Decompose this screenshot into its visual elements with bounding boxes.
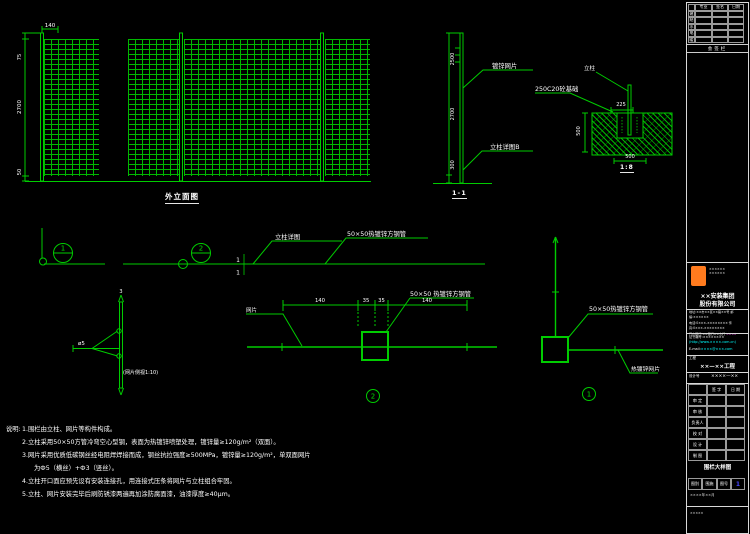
d2-leader-pipe: 50×50 热镀锌方钢管 — [410, 289, 471, 298]
info-cell-3: 图号 — [717, 478, 731, 490]
note-line-1: 1.围栏由立柱、网片等构件构成。 — [22, 424, 116, 433]
address-line1: 地址:××市××区××路××号 邮编:×××××× — [689, 310, 746, 321]
logo-side-line2: ×××××× — [709, 271, 745, 275]
elev-dim-50: 50 — [17, 169, 23, 175]
tb-divider — [687, 372, 748, 373]
sect-dim-2500: 2500 — [450, 53, 456, 66]
cert-number: 证书编号:×××××××× — [689, 334, 724, 339]
d2-dim-140a: 140 — [315, 298, 326, 304]
info-cell-2: 围施 — [702, 478, 717, 490]
detail2-lines — [246, 298, 497, 403]
drawing-info-row: 图别 围施 图号 1 — [688, 478, 745, 490]
plan-cut-top: 1 — [236, 257, 240, 264]
d1-leader-pipe: 50×50热镀锌方钢管 — [589, 304, 648, 313]
detail1-lines — [542, 237, 663, 401]
sect-dim-2700: 2700 — [450, 108, 456, 121]
info-cell-4: 1 — [731, 478, 745, 490]
tb-divider — [687, 262, 748, 263]
staff-row-label: 审 核 — [688, 406, 707, 417]
company-logo-side: ×××××× ×××××× — [709, 267, 745, 276]
elev-dim-75: 75 — [17, 54, 23, 60]
staff-table: 签 字 日 期 审 定 审 核 负责人 校 对 设 计 制 图 — [688, 384, 745, 461]
staff-row-label: 制 图 — [688, 450, 707, 461]
elevation-lines — [22, 26, 371, 182]
fnd-label-post: 立柱 — [584, 64, 596, 72]
plan-bubble-1: 1 — [61, 245, 65, 253]
project-value: ××—××工程 — [687, 362, 748, 370]
note-line-5: 4.立柱开口面应预先设有安装连接孔，用连接式压条将网片与立柱组合牢固。 — [22, 476, 236, 485]
d2-dim-140b: 140 — [422, 298, 433, 304]
tb-divider — [687, 506, 748, 507]
project-label: 工程 — [689, 356, 696, 361]
elev-dim-140: 140 — [45, 23, 56, 29]
d1-bubble: 1 — [587, 391, 591, 399]
info-cell-1: 图别 — [688, 478, 702, 490]
foundation-caption: 1:8 — [620, 164, 634, 173]
note-line-6: 5.立柱、网片安装完毕后刷防锈漆两遍再加涂防腐面漆，油漆厚度≥40μm。 — [22, 489, 234, 498]
plan-leader-detail: 立柱详图 — [275, 232, 300, 241]
drawing-title: 围栏大样图 — [687, 463, 748, 471]
elevation-caption: 外立面图 — [165, 191, 199, 204]
sign-row-label: 暖 — [688, 37, 695, 44]
footer-line2: ××××× — [690, 511, 703, 515]
email-label: E-mail: — [689, 347, 701, 351]
fnd-dim-depth: 500 — [576, 126, 582, 136]
d1-leader-mesh: 热镀锌网片 — [631, 365, 660, 373]
staff-row-label: 负责人 — [688, 417, 707, 428]
d2-label-mesh: 网片 — [246, 306, 257, 314]
sect-dim-300: 300 — [450, 160, 456, 170]
note-line-4: 为Ф5（横丝）+Ф3（竖丝）。 — [34, 463, 118, 472]
staff-header-date: 日 期 — [726, 384, 745, 395]
plan-strip-lines — [40, 228, 486, 275]
plan-cut-bottom: 1 — [236, 270, 240, 277]
sign-bar: 会签栏 — [687, 44, 748, 53]
design-no-value: ××××—×× — [711, 374, 738, 379]
cad-drawing-sheet: 140 75 2700 50 2500 2700 300 镀锌网片 立柱详图B … — [0, 0, 750, 534]
d2-bubble: 2 — [371, 393, 375, 401]
sect-leader-post: 立柱详图B — [490, 142, 520, 151]
fnd-dim-225: 225 — [616, 102, 626, 108]
company-logo — [691, 266, 706, 286]
footer-line1: ××××年××月 — [690, 493, 715, 498]
email-value: ××××@×××.com — [701, 347, 733, 351]
d2-dim-35b: 35 — [378, 298, 385, 304]
fnd-leader-concrete: 250C20砼基础 — [535, 84, 578, 93]
design-no-label: 设计号 — [689, 374, 700, 379]
staff-header-sign: 签 字 — [707, 384, 726, 395]
staff-row-label: 设 计 — [688, 439, 707, 450]
email-row: E-mail:××××@×××.com — [689, 347, 732, 351]
note-line-2: 2.立柱采用50×50方管冷弯空心型钢，表面为热镀锌喷塑处理，镀锌量≥120g/… — [22, 437, 280, 446]
note-line-3: 3.网片采用优质低碳钢丝经电阻焊焊接而成，钢丝抗拉强度≥500MPa，镀锌量≥1… — [22, 450, 311, 459]
fnd-dim-width: 500 — [625, 154, 635, 160]
side-top-label: 3 — [119, 289, 122, 295]
post-section-lines — [433, 33, 533, 184]
staff-row-label: 校 对 — [688, 428, 707, 439]
title-block: 专业 签名 日期 建 结 水 电 暖 会签栏 ×××××× ×××××× ××安… — [686, 2, 749, 534]
d2-dim-35a: 35 — [363, 298, 370, 304]
address-line2: 电话:0×××-×××××××× 传真:0×××-×××××××× — [689, 321, 746, 332]
website: (http://www.××××.com.cn) — [689, 340, 736, 344]
plan-bubble-2: 2 — [199, 245, 203, 253]
side-wire-label: ø5 — [78, 341, 85, 347]
plan-leader-pipe: 50×50热镀锌方钢管 — [347, 229, 406, 238]
tb-divider — [687, 355, 748, 356]
sect-leader-mesh: 镀锌网片 — [492, 61, 517, 70]
sign-table: 专业 签名 日期 建 结 水 电 暖 — [688, 4, 744, 43]
section-caption: 1-1 — [452, 189, 467, 199]
sideview-caption: (网片侧视1:10) — [123, 369, 158, 376]
elev-dim-2700: 2700 — [17, 100, 23, 114]
staff-row-label: 审 定 — [688, 395, 707, 406]
company-name-2: 股份有限公司 — [687, 299, 748, 308]
notes-label: 说明: — [6, 424, 21, 433]
